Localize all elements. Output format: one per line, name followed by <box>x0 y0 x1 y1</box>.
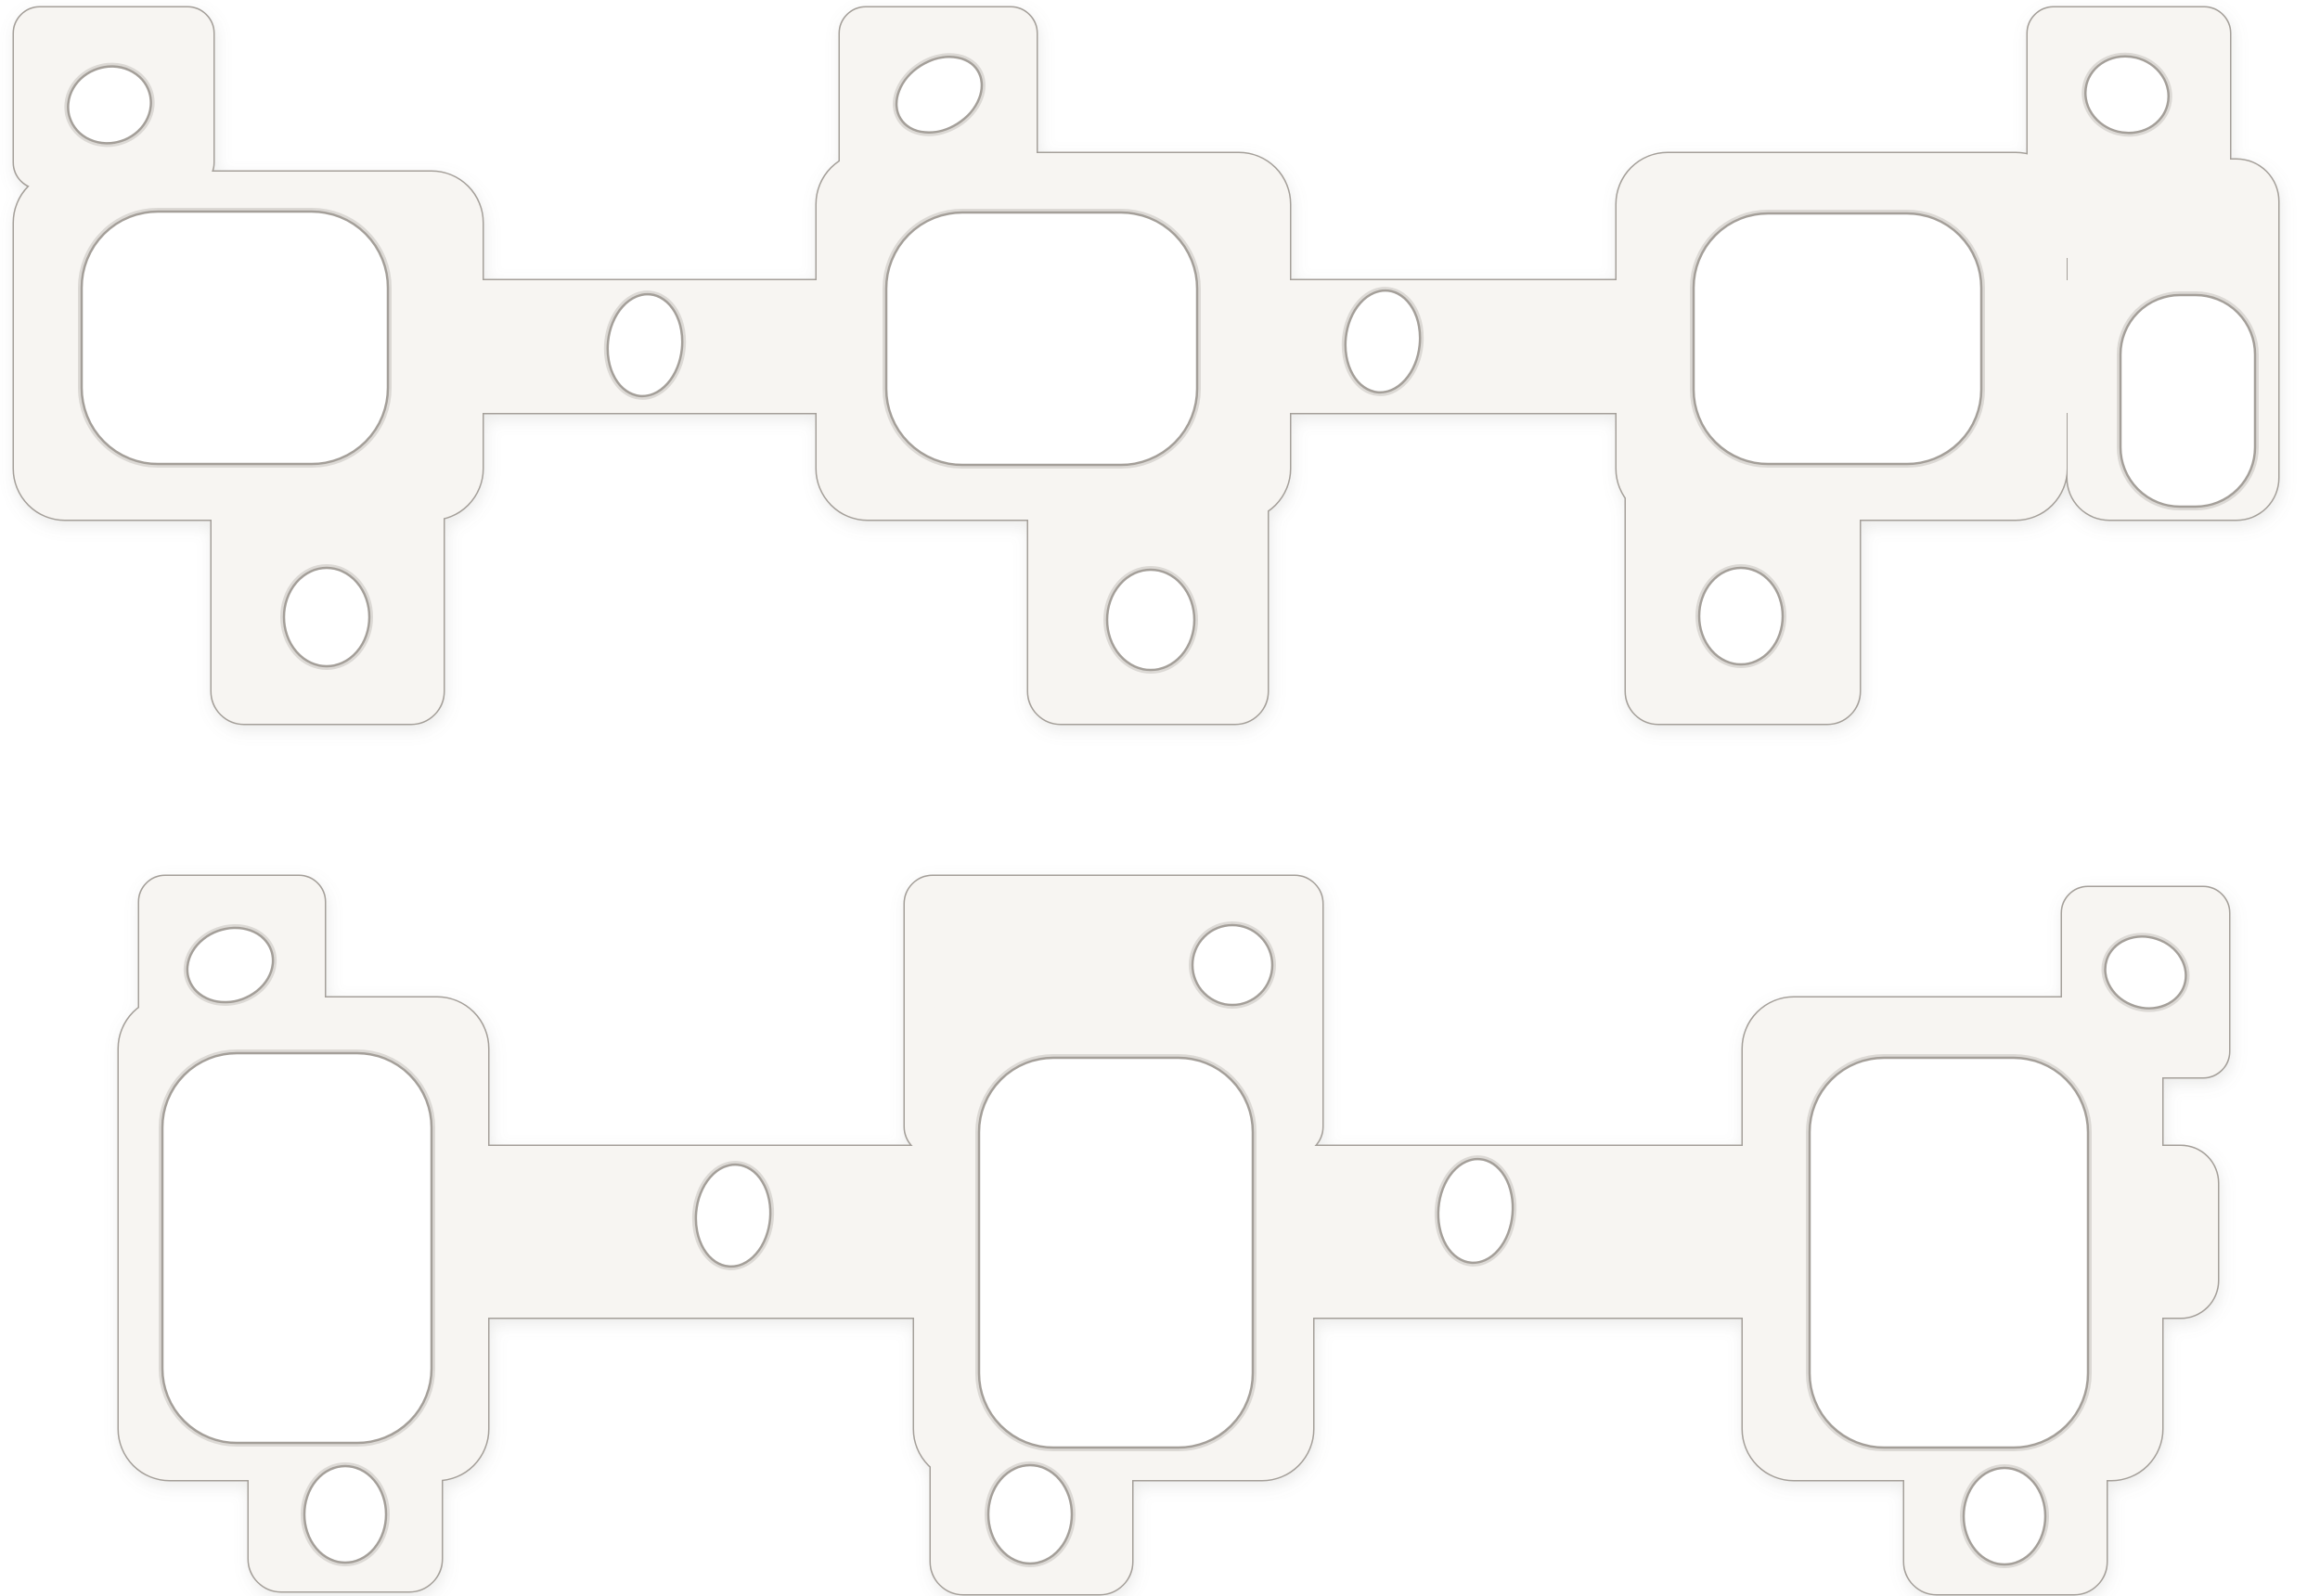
bolt-hole <box>1964 1468 2045 1564</box>
bolt-hole <box>1699 568 1783 664</box>
bolt-hole <box>304 1466 386 1563</box>
exhaust-port-hole-1 <box>82 212 388 464</box>
exhaust-port-hole-2 <box>979 1058 1253 1448</box>
exhaust-port-hole-1 <box>162 1053 432 1443</box>
bolt-hole <box>1107 570 1194 670</box>
bolt-hole <box>988 1465 1072 1564</box>
exhaust-port-hole-2 <box>886 212 1197 465</box>
bolt-hole <box>284 568 369 666</box>
exhaust-port-hole-3 <box>1810 1058 2088 1448</box>
bolt-hole <box>1192 925 1272 1005</box>
product-photo <box>0 0 2320 1596</box>
exhaust-port-hole-3 <box>1694 213 1981 464</box>
gaskets-photo-svg <box>0 0 2320 1596</box>
end-oval-port-hole <box>2120 295 2255 507</box>
